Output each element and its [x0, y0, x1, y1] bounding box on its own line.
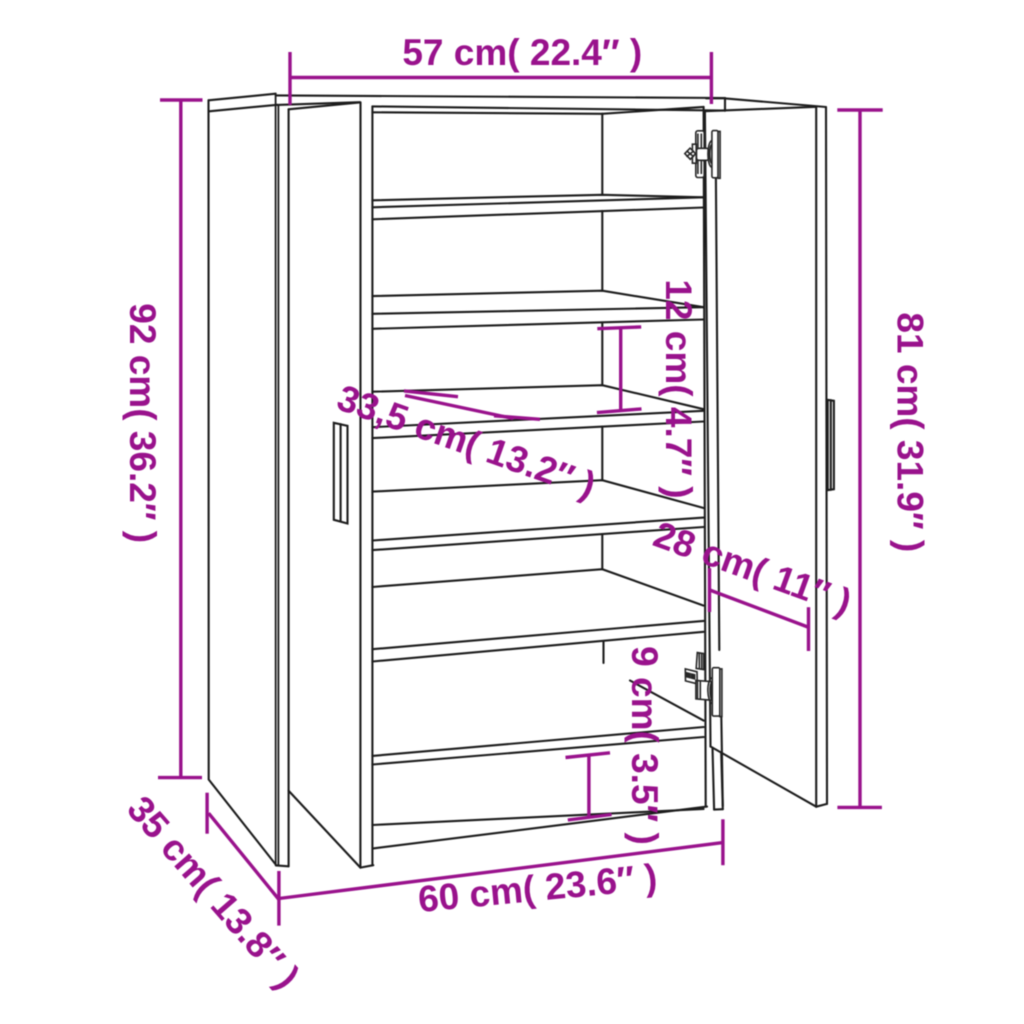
svg-text:92 cm( 36.2″ ): 92 cm( 36.2″ ): [122, 303, 163, 543]
svg-text:9 cm( 3.5″ ): 9 cm( 3.5″ ): [624, 646, 665, 845]
svg-text:12 cm( 4.7″ ): 12 cm( 4.7″ ): [658, 279, 699, 498]
svg-text:57 cm( 22.4″ ): 57 cm( 22.4″ ): [402, 32, 642, 73]
svg-text:81 cm( 31.9″ ): 81 cm( 31.9″ ): [890, 312, 931, 552]
